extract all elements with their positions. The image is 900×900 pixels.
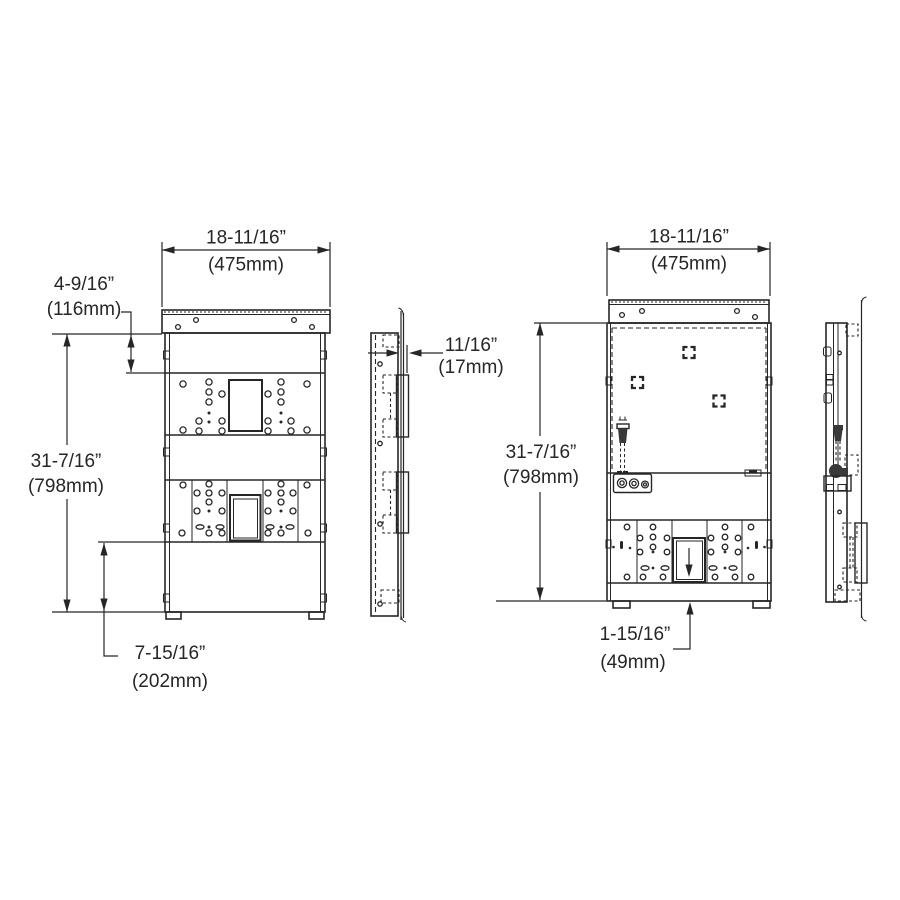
valve-assembly [614,417,652,493]
unit-foot-right [753,601,770,608]
dim-frame-height-mm: (798mm) [28,476,104,497]
dim-unit-bottom-offset-mm: (49mm) [600,652,665,673]
dim-frame-top-offset: 4-9/16” (116mm) [47,274,165,373]
frame-upper-plate [180,379,310,434]
square-marker [632,377,643,388]
dim-unit-width-mm: (475mm) [651,254,727,275]
frame-foot-left [166,612,181,619]
dim-frame-depth: 11/16” (17mm) [368,335,504,378]
front-view-frame [162,310,330,619]
dim-frame-bottom-offset-in: 7-15/16” [135,643,206,664]
dim-unit-height-in: 31-7/16” [506,442,577,463]
unit-hidden-panel [612,328,766,472]
dim-frame-bottom-offset-mm: (202mm) [132,671,208,692]
dimensions: 18-11/16” (475mm) 4-9/16” (116mm) 31-7/1… [28,227,770,693]
dim-frame-height: 31-7/16” (798mm) [28,334,104,612]
dim-unit-width: 18-11/16” (475mm) [607,227,770,297]
technical-drawing: 18-11/16” (475mm) 4-9/16” (116mm) 31-7/1… [0,0,900,900]
unit-top-bracket [609,300,769,323]
dim-frame-depth-mm: (17mm) [438,357,503,378]
dim-front-frame-width-in: 18-11/16” [206,228,286,249]
side-valve-assembly [824,425,858,491]
frame-foot-right [309,612,324,619]
side-view-unit [824,297,868,621]
dim-frame-depth-in: 11/16” [445,335,497,356]
upper-cutout [229,380,262,431]
dim-frame-top-offset-mm: (116mm) [47,299,122,320]
dim-frame-top-offset-in: 4-9/16” [54,274,114,295]
square-marker [684,347,695,358]
lower-cutout [230,495,261,541]
dim-unit-height-mm: (798mm) [503,467,579,488]
dim-front-frame-width: 18-11/16” (475mm) [162,228,330,308]
unit-lower-plate [612,520,766,583]
dim-unit-bottom-offset-in: 1-15/16” [600,624,671,645]
dim-frame-height-in: 31-7/16” [31,451,102,472]
dim-unit-height: 31-7/16” (798mm) [496,323,606,601]
frame-body [164,333,327,612]
drawing-canvas: 18-11/16” (475mm) 4-9/16” (116mm) 31-7/1… [0,0,900,900]
dim-front-frame-width-mm: (475mm) [208,255,284,276]
dim-unit-width-in: 18-11/16” [649,227,729,248]
frame-lower-plate [179,480,311,542]
unit-foot-left [613,601,630,608]
front-view-unit [606,300,772,608]
dim-frame-bottom-offset: 7-15/16” (202mm) [52,542,208,692]
square-marker [714,396,725,407]
dim-unit-bottom-offset: 1-15/16” (49mm) [600,602,694,673]
frame-top-bracket [162,310,330,333]
